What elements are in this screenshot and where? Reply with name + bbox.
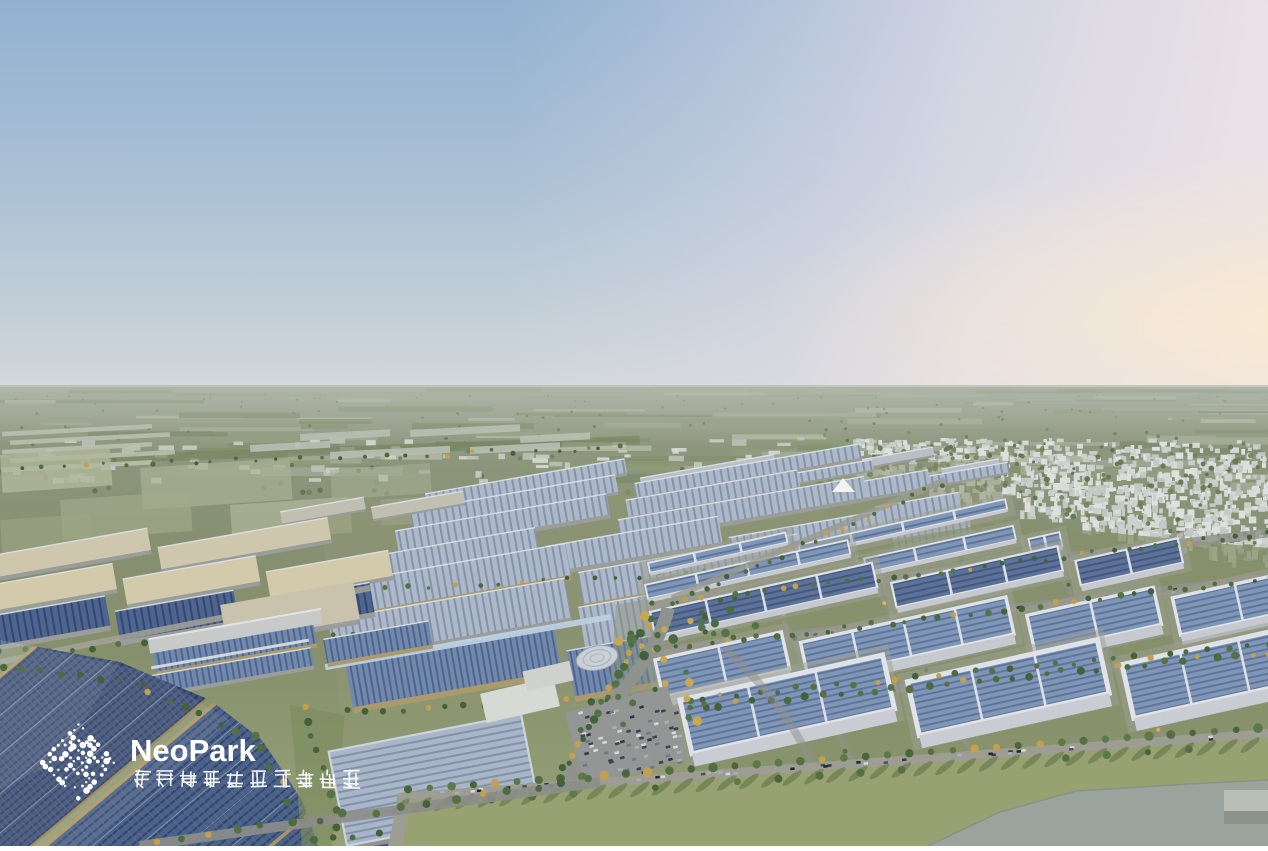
svg-text:NeoPark: NeoPark	[130, 733, 257, 768]
